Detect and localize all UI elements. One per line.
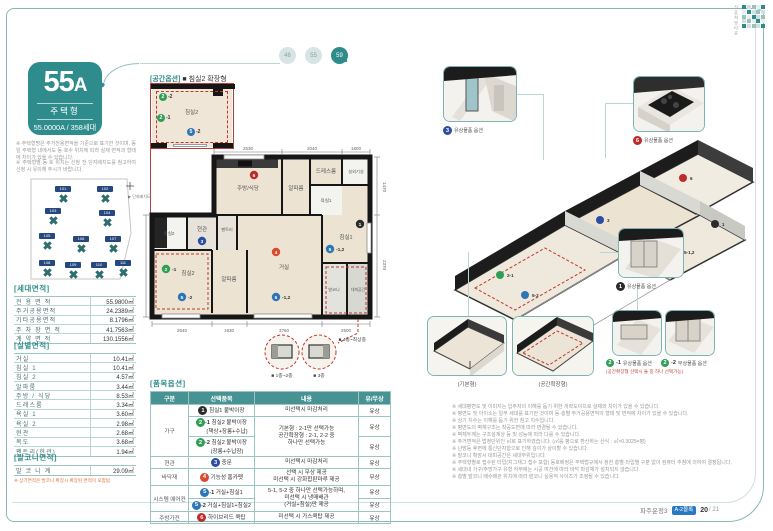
wardrobe2-note: (공간확장형 선택시 둘 중 하나 선택가능)	[606, 369, 726, 375]
axon-marker-5-2: 5-2	[532, 293, 539, 298]
dim-right-2: 2370	[382, 260, 387, 271]
row-value: 2.68㎡	[90, 428, 136, 437]
detail-label-floor-4-top: ■ 4층~최상층	[339, 336, 367, 343]
marker-3: 3	[201, 239, 204, 245]
svg-text:-1,2: -1,2	[282, 295, 291, 301]
options-title: [품목옵션]	[150, 378, 391, 389]
room-area-table: 거실10.41㎡침실 110.41㎡침실 24.57㎡알파룸3.44㎡주방 / …	[14, 353, 136, 457]
floor-plan: 주방/식당 알파룸 드레스룸 실외기실 욕실1 욕실2 현관 팬트리 침실2 알…	[142, 145, 392, 383]
marker-5-12-living: 5	[275, 295, 278, 301]
disclaimer-line: ※ 상기 치수는 이해를 돕기 위한 참고 치수입니다.	[452, 418, 764, 425]
marker-5-2: 5-2	[187, 128, 200, 136]
table-row: 주 차 장 면 적41.7563㎡	[14, 325, 136, 334]
building-marker: 102	[94, 186, 116, 204]
room-label-dress: 드레스룸	[316, 167, 336, 175]
marker-5-12-bed1: 5	[329, 247, 332, 253]
footer-badge: A-2블록	[672, 506, 697, 515]
footer-project: 파주운정3	[640, 505, 668, 515]
room-label-bed2: 침실2	[181, 269, 194, 277]
unit-note-2: ※ 주택형별 동·호 위치는 신청 전 단지배치도를 참고하여 신청 시 유의해…	[16, 160, 136, 174]
callout-wardrobe2-1-label: 2-1유상물품 옵션	[606, 359, 652, 367]
inset-room-label: 침실2	[185, 108, 198, 116]
row-label: 주방 / 식당	[14, 391, 90, 400]
row-label: 거실	[14, 354, 90, 363]
disclaimer-line: ※ 평면도의 벽체구조는 착공도면에 따라 변경될 수 있습니다.	[452, 425, 764, 432]
table-row: 주방 / 식당8.53㎡	[14, 391, 136, 400]
building-icon	[76, 243, 87, 254]
room-label-kitchen: 주방/식당	[237, 184, 259, 192]
row-value: 29.09㎡	[90, 466, 136, 475]
room-label-living: 거실	[279, 263, 289, 271]
table-row: 욕실 13.60㎡	[14, 410, 136, 419]
building-icon	[48, 215, 59, 226]
building-icon	[58, 193, 69, 204]
building-icon	[42, 240, 53, 251]
callout-wardrobe2-1	[612, 310, 662, 356]
disclaimer-line: ※ 벽체두께는 구조설계상 등 및 성능에 따라 다를 수 있습니다.	[452, 432, 764, 439]
balcony-area-table: 발 코 니 계29.09㎡	[14, 465, 136, 476]
disclaimer-line: ※ 층별 발코니 배수배관 위치에 따라 발코니 실용적 사이즈가 조정될 수 …	[452, 474, 764, 481]
row-value: 3.34㎡	[90, 400, 136, 409]
axon-marker-2-1: 2-1	[507, 273, 514, 278]
room-label-entry: 현관	[197, 225, 207, 233]
room-label-alpha-top: 알파룸	[288, 184, 303, 192]
building-icon	[68, 269, 79, 280]
col-header-desc: 내용	[255, 392, 359, 405]
callout-basic-plan	[427, 316, 507, 376]
callout-cooktop-label: 6유상물품 옵션	[633, 136, 673, 145]
row-label: 기타공용면적	[14, 315, 90, 324]
building-marker: 105	[36, 233, 58, 251]
callout-expanded-label: (공간확장형)	[512, 380, 594, 388]
row-label: 복도	[14, 437, 90, 446]
table-row: 주방가전 6 하이브리드 쿡탑 미선택 시 가스쿡탑 제공 유상	[151, 512, 391, 524]
brochure-page: { "brand": { "logo_text": "신혼희망타운", "foo…	[0, 0, 773, 531]
building-marker: 107	[102, 236, 124, 254]
disclaimer-line: ※ 발코니 확장시 대피공간은 세대부위입니다.	[452, 453, 764, 460]
brand-logo-text: 신혼희망타운	[733, 5, 739, 47]
room-label-bath2: 욕실2	[163, 230, 174, 237]
table-row: 현관 3 중문 미선택시 마감처리 유상	[151, 457, 391, 469]
room-label-balcony: 발코니	[328, 286, 340, 293]
building-marker: 109	[62, 262, 84, 280]
building-marker: 110	[88, 262, 110, 280]
axon-marker-5-12: 5-1,2	[684, 250, 695, 255]
table-row: 복도3.68㎡	[14, 438, 136, 447]
svg-text:-1,2: -1,2	[336, 247, 345, 253]
row-label: 드레스룸	[14, 400, 90, 409]
dim-bottom-4: 2500	[341, 328, 352, 333]
table-row: 알파룸3.44㎡	[14, 382, 136, 391]
unit-category: 주택형	[28, 106, 102, 117]
nav-circle-46[interactable]: 46	[279, 47, 296, 64]
svg-text:-1: -1	[172, 267, 177, 273]
connector-line	[140, 63, 280, 64]
row-label: 주 차 장 면 적	[14, 325, 90, 334]
disclaimer-line: ※ 주거면적은 법정단위인 ㎡로 표기하였습니다. (㎡를 평으로 환산하는 산…	[452, 439, 764, 446]
room-label-alpha: 알파룸	[221, 275, 236, 283]
row-label: 전 용 면 적	[14, 297, 90, 306]
building-marker: 104	[96, 210, 118, 228]
building-icon	[42, 267, 53, 278]
disclaimer-line: ※ 세대내 가구/주방가구 유형 하부에는 시공 여건에 따라 바닥 마감재가 …	[452, 467, 764, 474]
row-value: 41.7563㎡	[90, 325, 136, 334]
table-row: 침실 24.57㎡	[14, 373, 136, 382]
marker-2-1: 2-1	[157, 114, 170, 122]
col-header-item: 선택품목	[189, 392, 255, 405]
row-value: 3.44㎡	[90, 382, 136, 391]
row-value: 55.9800㎡	[90, 297, 136, 306]
connector	[600, 252, 618, 253]
building-marker: 108	[36, 260, 58, 278]
brand-logo-pattern-icon	[742, 5, 765, 28]
row-value: 8.53㎡	[90, 391, 136, 400]
options-section: [품목옵션] 구분 선택품목 내용 유/무상 가구 1 침실1 붙박이장 미선택…	[150, 378, 391, 524]
footer-page-total: / 21	[709, 507, 719, 513]
bed2-expansion-inset: 침실2 2-2 2-1 5-2	[150, 83, 234, 149]
dim-bottom-2: 1930	[224, 328, 235, 333]
row-label: 현관	[14, 428, 90, 437]
building-marker: 111	[112, 260, 134, 278]
row-value: 10.41㎡	[90, 354, 136, 363]
row-value: 3.60㎡	[90, 409, 136, 418]
callout-door-label: 3유상물품 옵션	[443, 126, 483, 135]
marker-1: 1	[359, 222, 362, 228]
table-row: 거실10.41㎡	[14, 354, 136, 363]
row-label: 욕실 2	[14, 419, 90, 428]
site-plan: ▶ 단지배치도 101 102 103 104 105 106 107 108 …	[30, 178, 138, 280]
room-label-shelter: 대피공간	[351, 287, 365, 292]
balcony-area-section: [발코니면적] 발 코 니 계29.09㎡ ※ 상기면적은 발코니 확장시 확장…	[14, 452, 136, 484]
table-row: 침실 110.41㎡	[14, 363, 136, 372]
marker-2: 2	[165, 267, 168, 273]
dim-top-3: 1800	[351, 146, 362, 151]
room-area-title: [실별면적]	[14, 340, 136, 351]
building-icon	[108, 243, 119, 254]
row-label: 침실 1	[14, 363, 90, 372]
room-label-pantry: 팬트리	[221, 226, 233, 233]
col-header-group: 구분	[151, 392, 189, 405]
table-row: 가구 1 침실1 붙박이장 미선택시 마감처리 유상	[151, 405, 391, 417]
axon-marker-6: 6	[690, 176, 693, 181]
unit-type-nav: 46 55 59	[279, 47, 348, 64]
building-icon	[94, 269, 105, 280]
callout-wardrobe1-label: 1유상물품 옵션	[616, 282, 656, 291]
unit-type-badge: 55A 주택형 55.0000A / 358세대	[28, 62, 102, 135]
unit-summary: 55.0000A / 358세대	[28, 122, 102, 133]
table-row: 현관2.68㎡	[14, 428, 136, 437]
marker-4: 4	[275, 250, 278, 256]
table-row: 시스템 에어컨 5-1 거실+침실1 5-1, 5-2 중 하나만 선택가능하며…	[151, 486, 391, 499]
axon-marker-3: 3	[607, 218, 610, 223]
building-marker: 106	[70, 236, 92, 254]
connector	[543, 94, 544, 160]
dim-top-1: 2530	[243, 146, 254, 151]
household-area-section: [세대면적] 전 용 면 적55.9800㎡주거공용면적24.2389㎡기타공용…	[14, 283, 136, 344]
row-label: 침실 2	[14, 372, 90, 381]
svg-text:-2: -2	[188, 295, 193, 301]
dim-right-1: 1470	[382, 182, 387, 193]
callout-wardrobe1	[618, 228, 684, 278]
callout-wardrobe2-2	[665, 310, 715, 356]
dim-bottom-3: 3760	[279, 328, 290, 333]
room-area-section: [실별면적] 거실10.41㎡침실 110.41㎡침실 24.57㎡알파룸3.4…	[14, 340, 136, 457]
marker-2-2: 2-2	[159, 93, 172, 101]
row-label: 발 코 니 계	[14, 466, 90, 475]
connector	[468, 252, 469, 316]
nav-circle-55[interactable]: 55	[305, 47, 322, 64]
axon-marker-1: 1	[722, 222, 725, 227]
callout-door	[443, 66, 517, 122]
row-value: 4.57㎡	[90, 372, 136, 381]
table-row: 주거공용면적24.2389㎡	[14, 306, 136, 315]
dim-bottom-1: 2640	[177, 328, 188, 333]
table-row: 발 코 니 계29.09㎡	[14, 466, 136, 475]
table-row: 드레스룸3.34㎡	[14, 400, 136, 409]
building-marker: 103	[42, 208, 64, 226]
row-label: 알파룸	[14, 382, 90, 391]
disclaimer-line: ※ 주택형별로 접수된 타입(지그재그 접수 포함) 동호배정은 주택법규에서 …	[452, 460, 764, 467]
callout-expanded-plan	[512, 316, 594, 376]
disclaimer-line: ※ 세대평면도 및 이미지는 입주자의 이해를 돕기 위한 개략도이므로 실제와…	[452, 404, 764, 411]
callout-cooktop	[633, 76, 705, 132]
row-value: 2.98㎡	[90, 419, 136, 428]
dim-top-2: 2040	[307, 146, 318, 151]
disclaimer-list: ※ 세대평면도 및 이미지는 입주자의 이해를 돕기 위한 개략도이므로 실제와…	[452, 404, 764, 481]
callout-basic-label: (기본형)	[427, 380, 507, 388]
room-label-util: 실외기실	[348, 168, 364, 175]
unit-type-label: 55A	[28, 67, 102, 101]
marker-6: 6	[253, 173, 256, 179]
callout-wardrobe2-2-label: 2-2무상물품 옵션	[661, 359, 707, 367]
table-row: 전 용 면 적55.9800㎡	[14, 297, 136, 306]
options-table: 구분 선택품목 내용 유/무상 가구 1 침실1 붙박이장 미선택시 마감처리 …	[150, 391, 391, 524]
table-row: 바닥재 4 기능성 홈카펫 선택 시 무상 제공 미선택 시 강화합판마루 제공…	[151, 469, 391, 486]
household-area-table: 전 용 면 적55.9800㎡주거공용면적24.2389㎡기타공용면적8.179…	[14, 296, 136, 344]
table-row: 욕실 22.98㎡	[14, 419, 136, 428]
building-icon	[102, 217, 113, 228]
disclaimer-line: ※ 평면도 및 아이소는 일부 세대를 표기한 것이며 동·층별 주거공용면적의…	[452, 411, 764, 418]
connector	[517, 94, 543, 95]
col-header-price: 유/무상	[359, 392, 391, 405]
nav-circle-59-active[interactable]: 59	[331, 47, 348, 64]
household-area-title: [세대면적]	[14, 283, 136, 294]
connector	[605, 103, 633, 104]
row-value: 8.1796㎡	[90, 315, 136, 324]
room-label-bath1: 욕실1	[320, 197, 331, 204]
balcony-area-note: ※ 상기면적은 발코니 확장시 확장된 면적이 포함됨	[14, 478, 136, 484]
balcony-area-title: [발코니면적]	[14, 452, 136, 463]
table-row: 기타공용면적8.1796㎡	[14, 316, 136, 325]
room-label-bed1: 침실1	[339, 233, 352, 241]
row-value: 10.41㎡	[90, 363, 136, 372]
disclaimer-line: ※ 난방등 후면에 통신단자함으로 인해 깊이가 상이할 수 있습니다.	[452, 446, 764, 453]
building-icon	[100, 193, 111, 204]
building-icon	[118, 267, 129, 278]
connector	[605, 103, 606, 158]
footer-page-number: 20	[700, 507, 708, 514]
building-marker: 101	[52, 186, 74, 204]
row-value: 24.2389㎡	[90, 306, 136, 315]
page-footer: 파주운정3 A-2블록 20 / 21	[640, 505, 719, 515]
row-value: 3.68㎡	[90, 437, 136, 446]
row-label: 욕실 1	[14, 409, 90, 418]
marker-5-2: 5	[181, 295, 184, 301]
unit-note-1: ※ 주택형명은 주거전용면적을 기준으로 표기한 것이며, 동일 주택형 내에서…	[16, 141, 136, 162]
row-label: 주거공용면적	[14, 306, 90, 315]
